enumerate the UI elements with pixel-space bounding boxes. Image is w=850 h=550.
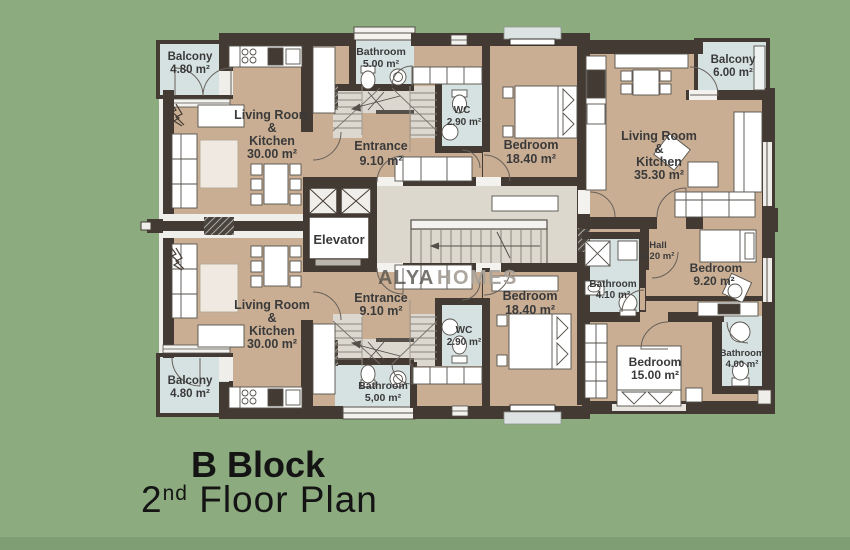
svg-text:Balcony: Balcony <box>711 54 756 66</box>
svg-text:4.00 m²: 4.00 m² <box>726 359 759 370</box>
svg-text:2.90 m²: 2.90 m² <box>447 337 482 348</box>
svg-text:4.80 m²: 4.80 m² <box>170 64 210 76</box>
svg-text:Kitchen: Kitchen <box>636 155 682 169</box>
svg-text:Bathroom: Bathroom <box>589 279 636 290</box>
svg-text:Bedroom: Bedroom <box>629 355 682 369</box>
svg-text:Bedroom: Bedroom <box>503 289 558 303</box>
svg-text:WC: WC <box>456 325 473 336</box>
svg-text:30.00 m²: 30.00 m² <box>247 337 297 351</box>
svg-text:2.90 m²: 2.90 m² <box>447 117 482 128</box>
svg-text:Balcony: Balcony <box>168 51 213 63</box>
svg-text:&: & <box>267 311 276 325</box>
svg-text:5,00 m²: 5,00 m² <box>365 392 402 404</box>
svg-text:Living Room: Living Room <box>234 298 310 312</box>
svg-text:Balcony: Balcony <box>168 375 213 387</box>
svg-text:Kitchen: Kitchen <box>249 324 295 338</box>
svg-text:ALYA: ALYA <box>378 267 435 289</box>
svg-text:Bedroom: Bedroom <box>690 261 743 275</box>
svg-text:30.00 m²: 30.00 m² <box>247 147 297 161</box>
svg-text:Entrance: Entrance <box>354 291 408 305</box>
svg-text:Bedroom: Bedroom <box>504 138 559 152</box>
svg-text:Bathroom: Bathroom <box>720 348 765 359</box>
svg-text:4.10 m²: 4.10 m² <box>596 290 631 301</box>
svg-text:Kitchen: Kitchen <box>249 134 295 148</box>
svg-text:6.00 m²: 6.00 m² <box>713 67 753 79</box>
svg-text:15.00 m²: 15.00 m² <box>631 368 679 382</box>
svg-text:9.20 m²: 9.20 m² <box>693 274 734 288</box>
svg-text:4.80 m²: 4.80 m² <box>170 388 210 400</box>
svg-text:&: & <box>654 142 663 156</box>
svg-text:Living Room: Living Room <box>234 108 310 122</box>
svg-text:3.20 m²: 3.20 m² <box>642 251 675 262</box>
svg-text:Living Room: Living Room <box>621 129 697 143</box>
svg-text:Entrance: Entrance <box>354 139 408 153</box>
svg-text:HOMES: HOMES <box>437 267 518 289</box>
svg-text:9.10 m²: 9.10 m² <box>359 154 402 168</box>
svg-text:&: & <box>267 121 276 135</box>
svg-text:9.10 m²: 9.10 m² <box>359 304 402 318</box>
svg-text:18.40 m²: 18.40 m² <box>506 152 556 166</box>
svg-text:Hall: Hall <box>649 240 666 251</box>
svg-text:35.30 m²: 35.30 m² <box>634 168 684 182</box>
svg-text:18.40 m²: 18.40 m² <box>505 303 555 317</box>
svg-text:Bathroom: Bathroom <box>358 380 408 392</box>
svg-text:5.00 m²: 5.00 m² <box>363 58 400 70</box>
svg-text:Bathroom: Bathroom <box>356 46 406 58</box>
svg-text:Elevator: Elevator <box>313 232 364 247</box>
svg-text:WC: WC <box>454 105 471 116</box>
